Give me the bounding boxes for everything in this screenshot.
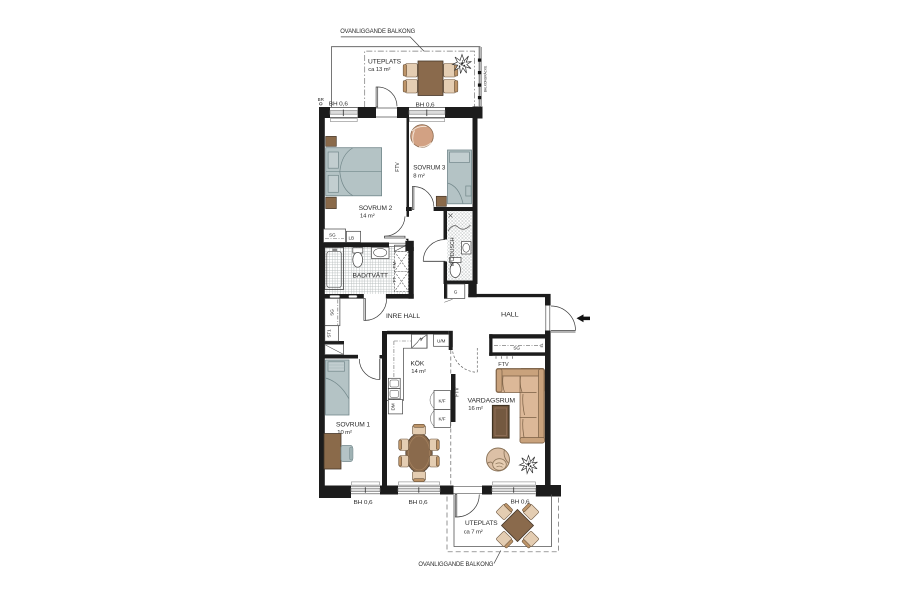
svg-text:U/M: U/M bbox=[437, 339, 445, 344]
svg-text:VARDAGSRUM: VARDAGSRUM bbox=[468, 398, 516, 405]
svg-text:BH 0,6: BH 0,6 bbox=[416, 103, 436, 109]
svg-text:14 m²: 14 m² bbox=[360, 213, 375, 219]
svg-text:14 m²: 14 m² bbox=[411, 369, 426, 375]
svg-text:KÖK: KÖK bbox=[411, 360, 425, 368]
svg-text:DM: DM bbox=[391, 403, 396, 410]
svg-text:BALKONGRÄCKE: BALKONGRÄCKE bbox=[484, 66, 488, 92]
svg-text:OVANLIGGANDE BALKONG: OVANLIGGANDE BALKONG bbox=[340, 28, 415, 35]
svg-text:EL: EL bbox=[540, 343, 544, 347]
svg-text:SG: SG bbox=[330, 309, 335, 316]
svg-text:INRE HALL: INRE HALL bbox=[386, 313, 420, 320]
svg-text:BAD/TVÄTT: BAD/TVÄTT bbox=[353, 272, 389, 280]
svg-text:16 m²: 16 m² bbox=[468, 406, 483, 412]
svg-text:SG: SG bbox=[329, 233, 336, 238]
svg-text:ca 7 m²: ca 7 m² bbox=[464, 529, 483, 535]
svg-text:WC/DUSCH: WC/DUSCH bbox=[450, 237, 456, 266]
svg-text:BH 0,6: BH 0,6 bbox=[354, 500, 374, 506]
svg-text:FTV: FTV bbox=[395, 162, 401, 172]
svg-text:BH 0,6: BH 0,6 bbox=[511, 500, 531, 506]
svg-text:OVANLIGGANDE BALKONG: OVANLIGGANDE BALKONG bbox=[418, 561, 493, 568]
svg-text:UTEPLATS: UTEPLATS bbox=[368, 58, 402, 65]
svg-text:BR: BR bbox=[318, 97, 325, 102]
svg-text:FTV: FTV bbox=[498, 362, 509, 368]
svg-text:SOVRUM 3: SOVRUM 3 bbox=[413, 165, 445, 172]
svg-text:BH 0,6: BH 0,6 bbox=[409, 500, 429, 506]
svg-text:HALL: HALL bbox=[501, 311, 519, 318]
svg-text:BH 0,6: BH 0,6 bbox=[329, 101, 349, 107]
svg-text:SOVRUM 2: SOVRUM 2 bbox=[359, 205, 393, 212]
svg-text:SOVRUM 1: SOVRUM 1 bbox=[336, 421, 370, 428]
svg-text:K/F: K/F bbox=[439, 398, 446, 403]
svg-text:TT: TT bbox=[392, 277, 398, 283]
svg-text:TM: TM bbox=[392, 262, 398, 269]
svg-text:SG: SG bbox=[513, 346, 520, 351]
svg-text:8 m²: 8 m² bbox=[413, 173, 425, 179]
svg-text:G: G bbox=[454, 289, 458, 294]
svg-text:LB: LB bbox=[349, 236, 355, 241]
svg-text:ST1: ST1 bbox=[327, 329, 332, 338]
svg-text:FTV: FTV bbox=[455, 387, 461, 397]
svg-text:ca 13 m²: ca 13 m² bbox=[368, 67, 390, 73]
svg-text:UTEPLATS: UTEPLATS bbox=[465, 520, 498, 527]
svg-text:K/F: K/F bbox=[439, 417, 446, 422]
